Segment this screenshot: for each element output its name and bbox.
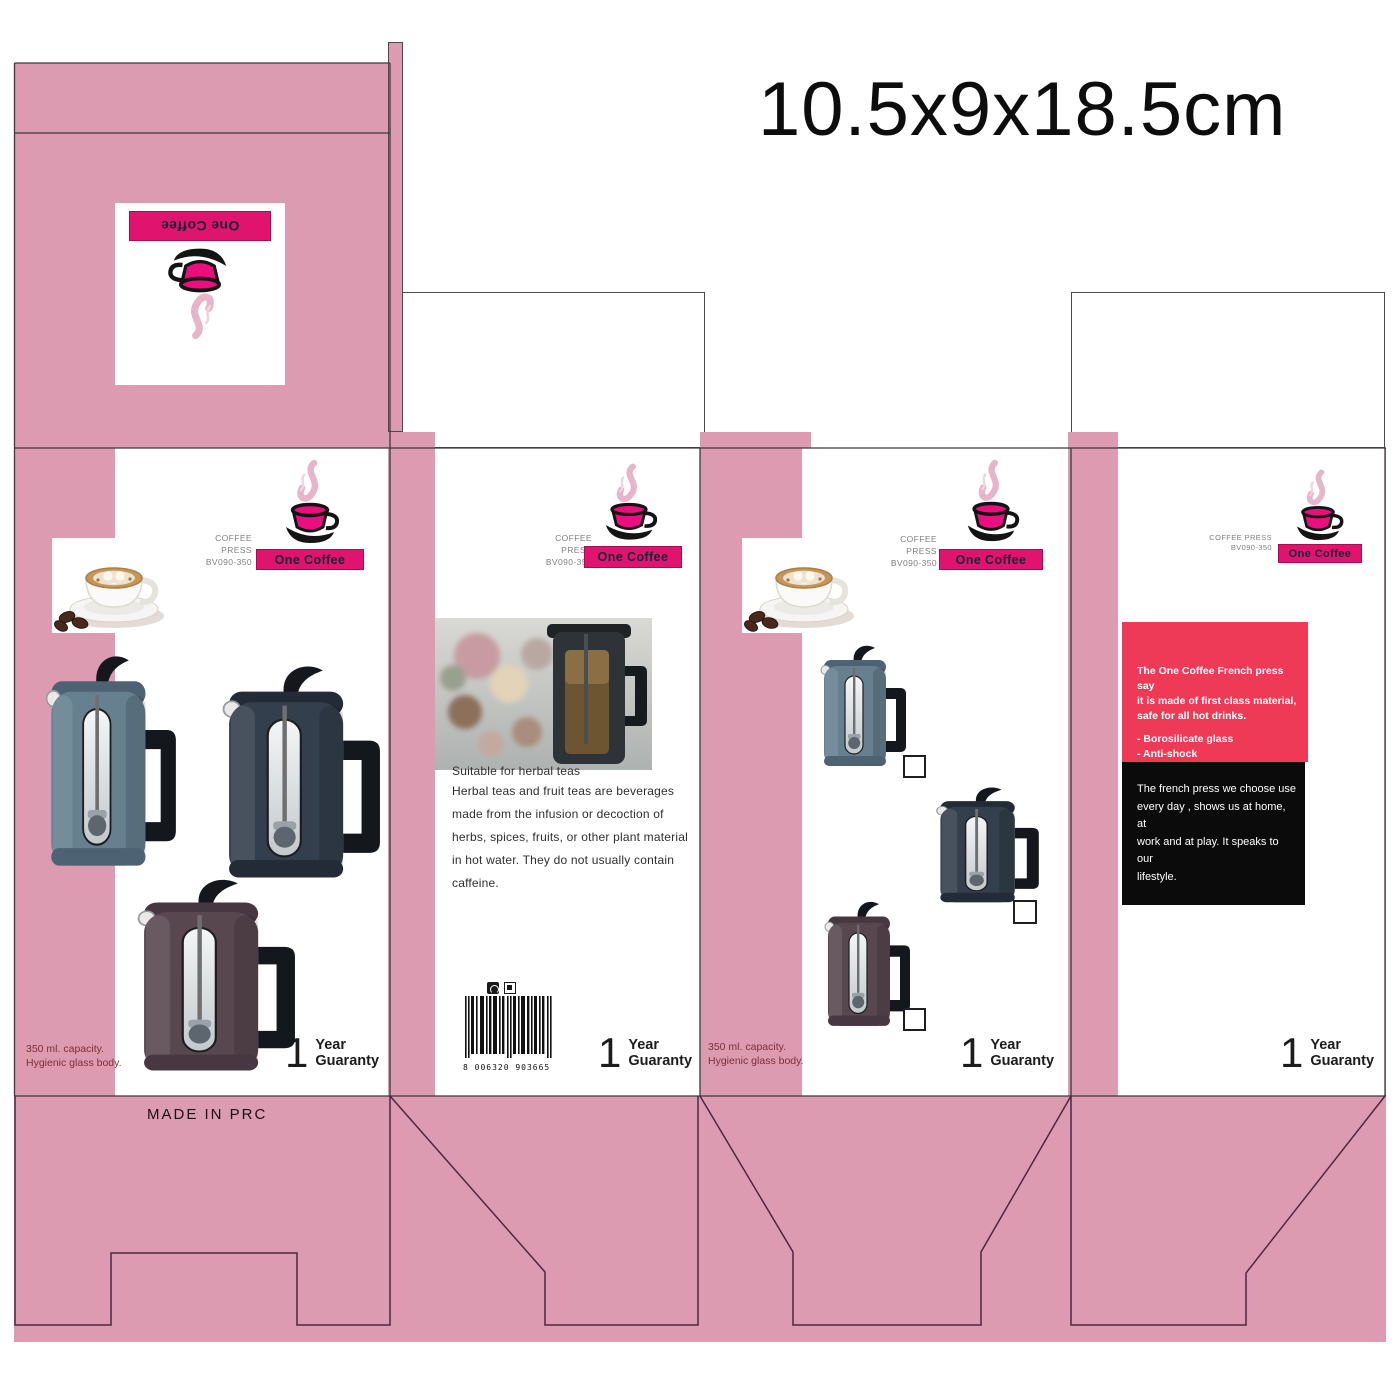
variant-checkbox-brown <box>903 1008 926 1031</box>
guaranty-badge: 1 Year Guaranty <box>598 1034 692 1072</box>
product-name: COFFEE PRESS <box>188 532 252 556</box>
capacity-line1: 350 ml. capacity. <box>26 1042 122 1056</box>
french-press-brown-image <box>122 874 306 1080</box>
product-code: BV090-350 <box>1208 543 1272 553</box>
product-header-p2: COFFEE PRESS BV090-350 <box>528 532 592 568</box>
guaranty-badge: 1 Year Guaranty <box>1280 1034 1374 1072</box>
herbal-paragraph: Herbal teas and fruit teas are beverages… <box>452 780 712 895</box>
guaranty-word1: Year <box>990 1037 1054 1053</box>
french-press-navy-image <box>926 784 1046 908</box>
material-info-box: The One Coffee French press say it is ma… <box>1122 622 1308 762</box>
coffee-cup-logo-icon <box>598 462 660 546</box>
guaranty-word2: Guaranty <box>990 1053 1054 1069</box>
guaranty-word2: Guaranty <box>628 1053 692 1069</box>
guaranty-word2: Guaranty <box>1310 1053 1374 1069</box>
lifestyle-info-box: The french press we choose use every day… <box>1122 762 1305 905</box>
herbal-tea-photo <box>435 618 652 770</box>
french-press-navy-image <box>207 660 391 888</box>
packaging-dieline-artboard: One Coffee 10.5x9x18.5cm COFFEE PRESS BV… <box>0 0 1400 1400</box>
dimensions-title: 10.5x9x18.5cm <box>758 66 1286 153</box>
coffee-cup-logo-icon <box>960 458 1022 548</box>
french-press-brown-image <box>816 898 916 1032</box>
barcode-block: 8 006320 903665 <box>463 982 555 1072</box>
coffee-cup-logo-icon <box>1290 468 1346 546</box>
brand-name: One Coffee <box>956 553 1027 567</box>
guaranty-word1: Year <box>1310 1037 1374 1053</box>
guaranty-number: 1 <box>1280 1034 1303 1072</box>
product-name: COFFEE PRESS <box>1208 533 1272 543</box>
capacity-line2: Hygienic glass body. <box>708 1054 804 1068</box>
brand-name: One Coffee <box>598 550 669 564</box>
guaranty-number: 1 <box>598 1034 621 1072</box>
product-header-p1: COFFEE PRESS BV090-350 <box>188 532 252 568</box>
french-press-blue-image <box>812 642 912 772</box>
material-bullet-2: - Anti-shock <box>1137 747 1298 762</box>
lifestyle-text: The french press we choose use every day… <box>1137 781 1297 886</box>
capacity-line2: Hygienic glass body. <box>26 1056 122 1070</box>
made-in-label: MADE IN PRC <box>147 1106 267 1123</box>
french-press-blue-image <box>33 650 185 876</box>
cappuccino-photo <box>52 538 170 633</box>
barcode <box>463 996 555 1058</box>
guaranty-number: 1 <box>960 1034 983 1072</box>
product-header-p3: COFFEE PRESS BV090-350 <box>873 533 937 569</box>
recycle-icon <box>487 982 499 994</box>
product-code: BV090-350 <box>528 556 592 568</box>
brand-banner: One Coffee <box>939 549 1043 570</box>
brand-banner: One Coffee <box>1278 544 1362 563</box>
cappuccino-photo <box>742 538 860 633</box>
coffee-cup-logo-icon <box>278 458 342 550</box>
guaranty-word1: Year <box>315 1037 379 1053</box>
guaranty-word1: Year <box>628 1037 692 1053</box>
guaranty-badge: 1 Year Guaranty <box>960 1034 1054 1072</box>
capacity-note: 350 ml. capacity. Hygienic glass body. <box>26 1042 122 1070</box>
certification-icon <box>504 982 516 994</box>
product-code: BV090-350 <box>188 556 252 568</box>
product-name: COFFEE PRESS <box>528 532 592 556</box>
brand-banner: One Coffee <box>256 549 364 570</box>
herbal-title: Suitable for herbal teas <box>452 764 580 778</box>
product-header-p4: COFFEE PRESS BV090-350 <box>1208 533 1272 553</box>
material-intro: The One Coffee French press say it is ma… <box>1137 664 1298 724</box>
product-code: BV090-350 <box>873 557 937 569</box>
capacity-note: 350 ml. capacity. Hygienic glass body. <box>708 1040 804 1068</box>
brand-name: One Coffee <box>275 553 346 567</box>
capacity-line1: 350 ml. capacity. <box>708 1040 804 1054</box>
variant-checkbox-navy <box>1013 900 1037 924</box>
variant-checkbox-blue <box>903 755 926 778</box>
brand-banner: One Coffee <box>584 546 682 568</box>
material-bullet-1: - Borosilicate glass <box>1137 732 1298 747</box>
brand-name: One Coffee <box>1289 548 1352 560</box>
product-name: COFFEE PRESS <box>873 533 937 557</box>
guaranty-word2: Guaranty <box>315 1053 379 1069</box>
barcode-number: 8 006320 903665 <box>463 1063 555 1072</box>
